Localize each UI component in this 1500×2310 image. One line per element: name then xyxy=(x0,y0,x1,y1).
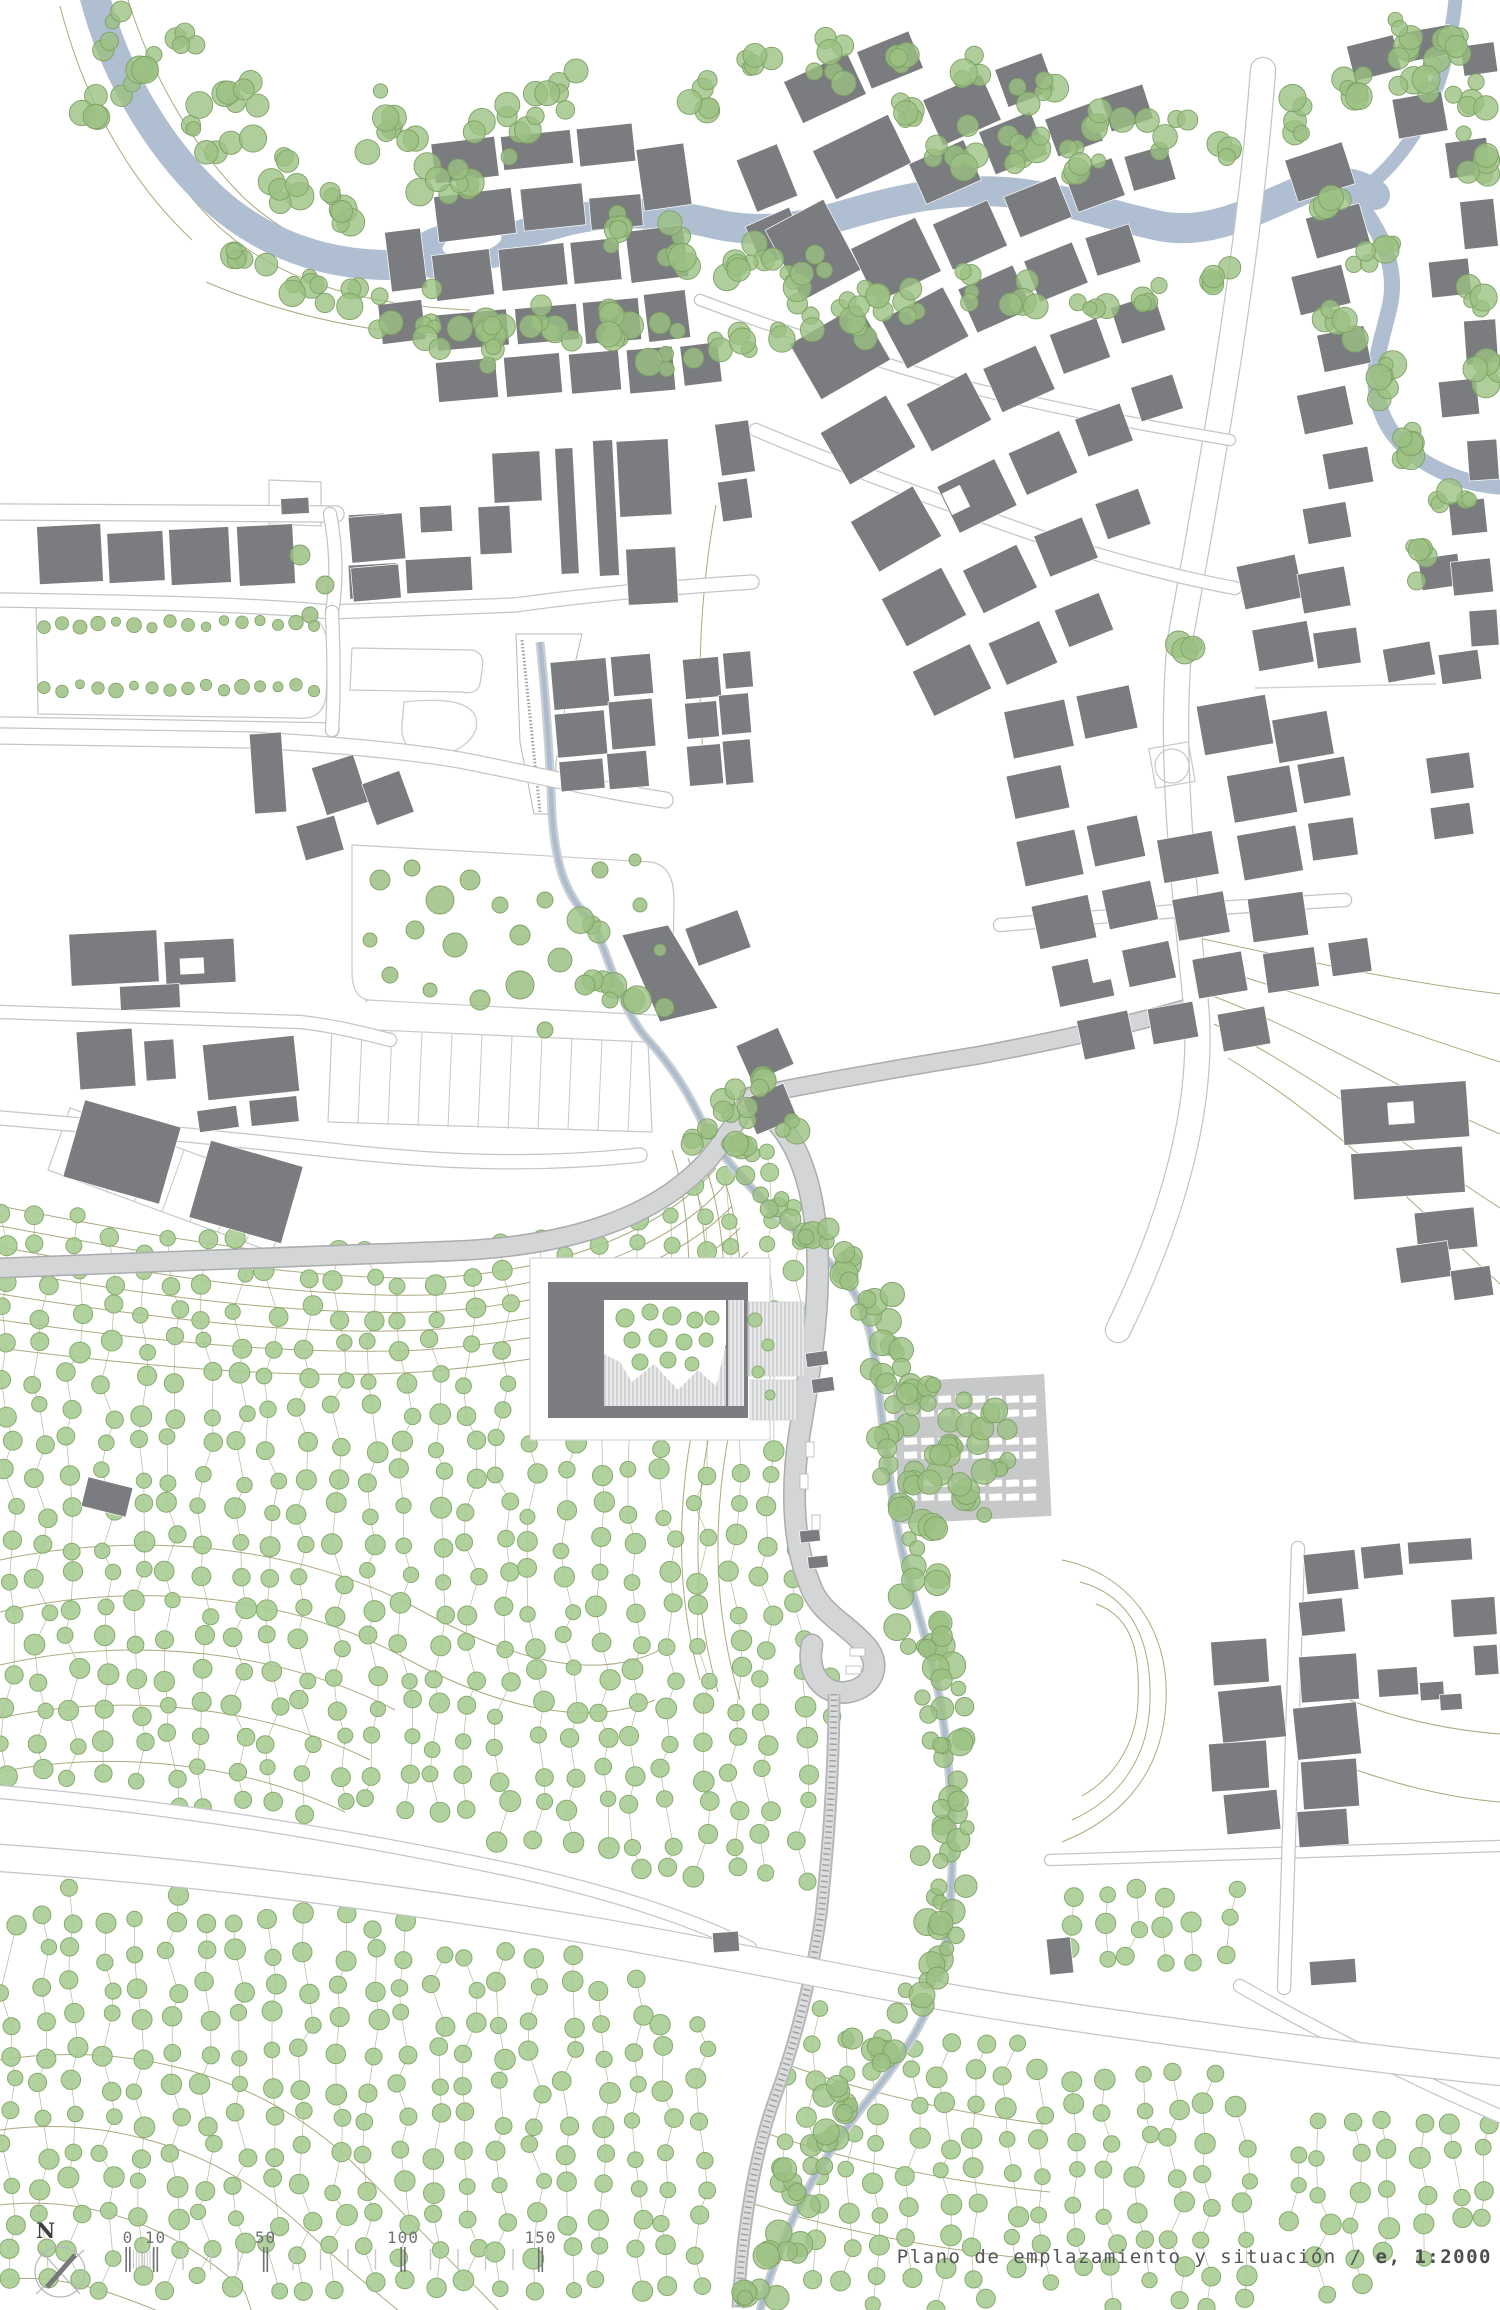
drawing-title: Plano de emplazamiento y situación / e, … xyxy=(0,2246,1492,2268)
drawing-scale-text: e, 1:2000 xyxy=(1376,2246,1492,2268)
site-plan-canvas: Plano de emplazamiento y situación / e, … xyxy=(0,0,1500,2310)
project-building xyxy=(530,1258,804,1440)
scale-label-100: 100 xyxy=(387,2228,419,2247)
scale-label-0: 0 xyxy=(123,2228,134,2247)
drawing-title-text: Plano de emplazamiento y situación / xyxy=(897,2246,1376,2268)
scale-label-10: 10 xyxy=(145,2228,166,2247)
north-label: N xyxy=(36,2218,55,2243)
scale-label-150: 150 xyxy=(525,2228,557,2247)
site-plan-svg xyxy=(0,0,1500,2310)
scale-label-50: 50 xyxy=(255,2228,276,2247)
